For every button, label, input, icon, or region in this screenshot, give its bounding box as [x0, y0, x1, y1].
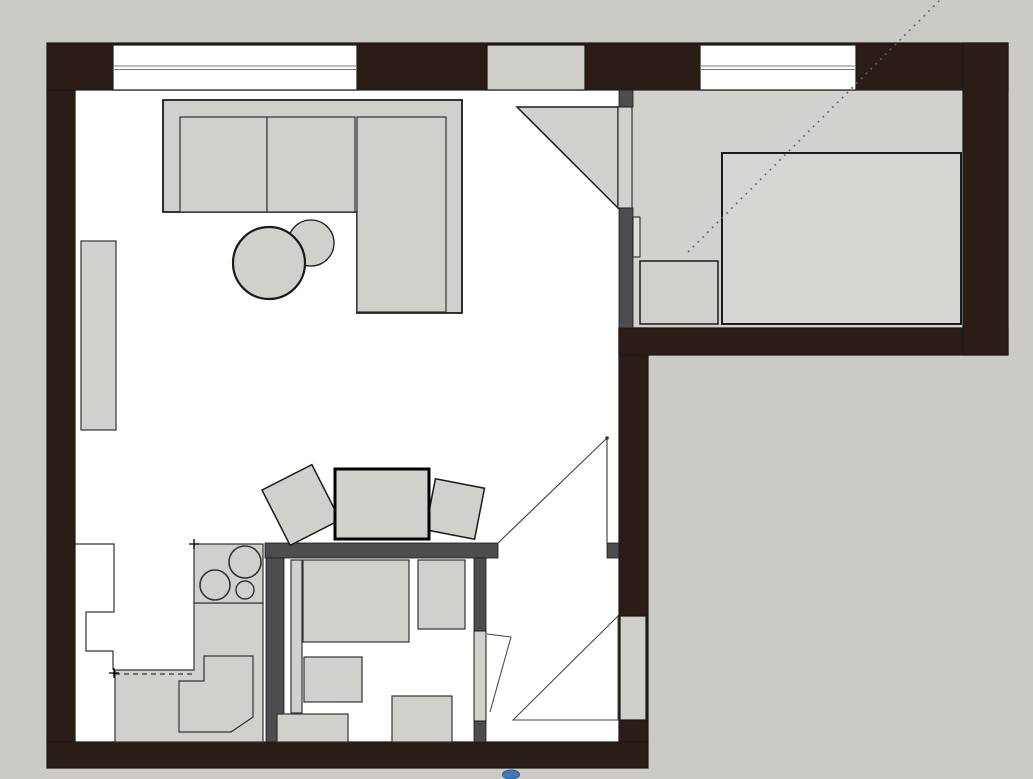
right-exterior-wall [963, 43, 1008, 355]
nightstand [640, 261, 718, 324]
living-room-window [113, 45, 357, 90]
left-exterior-wall [47, 90, 75, 742]
bedroom-partition-stub [619, 90, 633, 107]
blue-marker [503, 770, 520, 779]
bathroom-right-wall-stub [474, 721, 486, 742]
dining-table [335, 469, 429, 539]
wall-infill-block [487, 45, 585, 90]
bedroom-window [700, 45, 856, 90]
bathroom-cabinet-right [418, 560, 465, 629]
dining-chair-right [425, 479, 484, 540]
bottom-exterior-wall [47, 742, 648, 768]
bathroom-right-wall-upper [474, 558, 486, 631]
bedroom-partition-wall [619, 208, 633, 328]
toilet [392, 696, 452, 742]
bedroom-door-leaf [618, 107, 632, 208]
hall-opening-stub [607, 543, 619, 558]
burner-medium [200, 570, 230, 600]
entrance-door-leaf [620, 616, 646, 720]
bathroom-door-leaf [474, 631, 486, 721]
floor-plan-stage [0, 0, 1033, 779]
bedroom-bottom-exterior-wall [619, 328, 1008, 355]
wall-shelf [81, 241, 116, 430]
bathroom-pipe-chase [291, 560, 302, 713]
bathroom-cabinet-bottom [277, 714, 348, 742]
bedroom-wall-fixture [633, 217, 640, 257]
washing-machine [303, 560, 409, 642]
floor-plan-canvas [0, 0, 1033, 779]
burner-large [229, 546, 261, 578]
sofa-chaise-cushion [357, 117, 446, 312]
bed [722, 153, 961, 324]
hall-partition-band [265, 543, 498, 558]
sofa-cushion-right [267, 117, 355, 212]
bathroom-sink [304, 657, 362, 702]
burner-small [236, 581, 254, 599]
sofa-cushion-left [180, 117, 267, 212]
coffee-table [233, 227, 305, 299]
hall-door-hinge-dot [605, 436, 609, 440]
